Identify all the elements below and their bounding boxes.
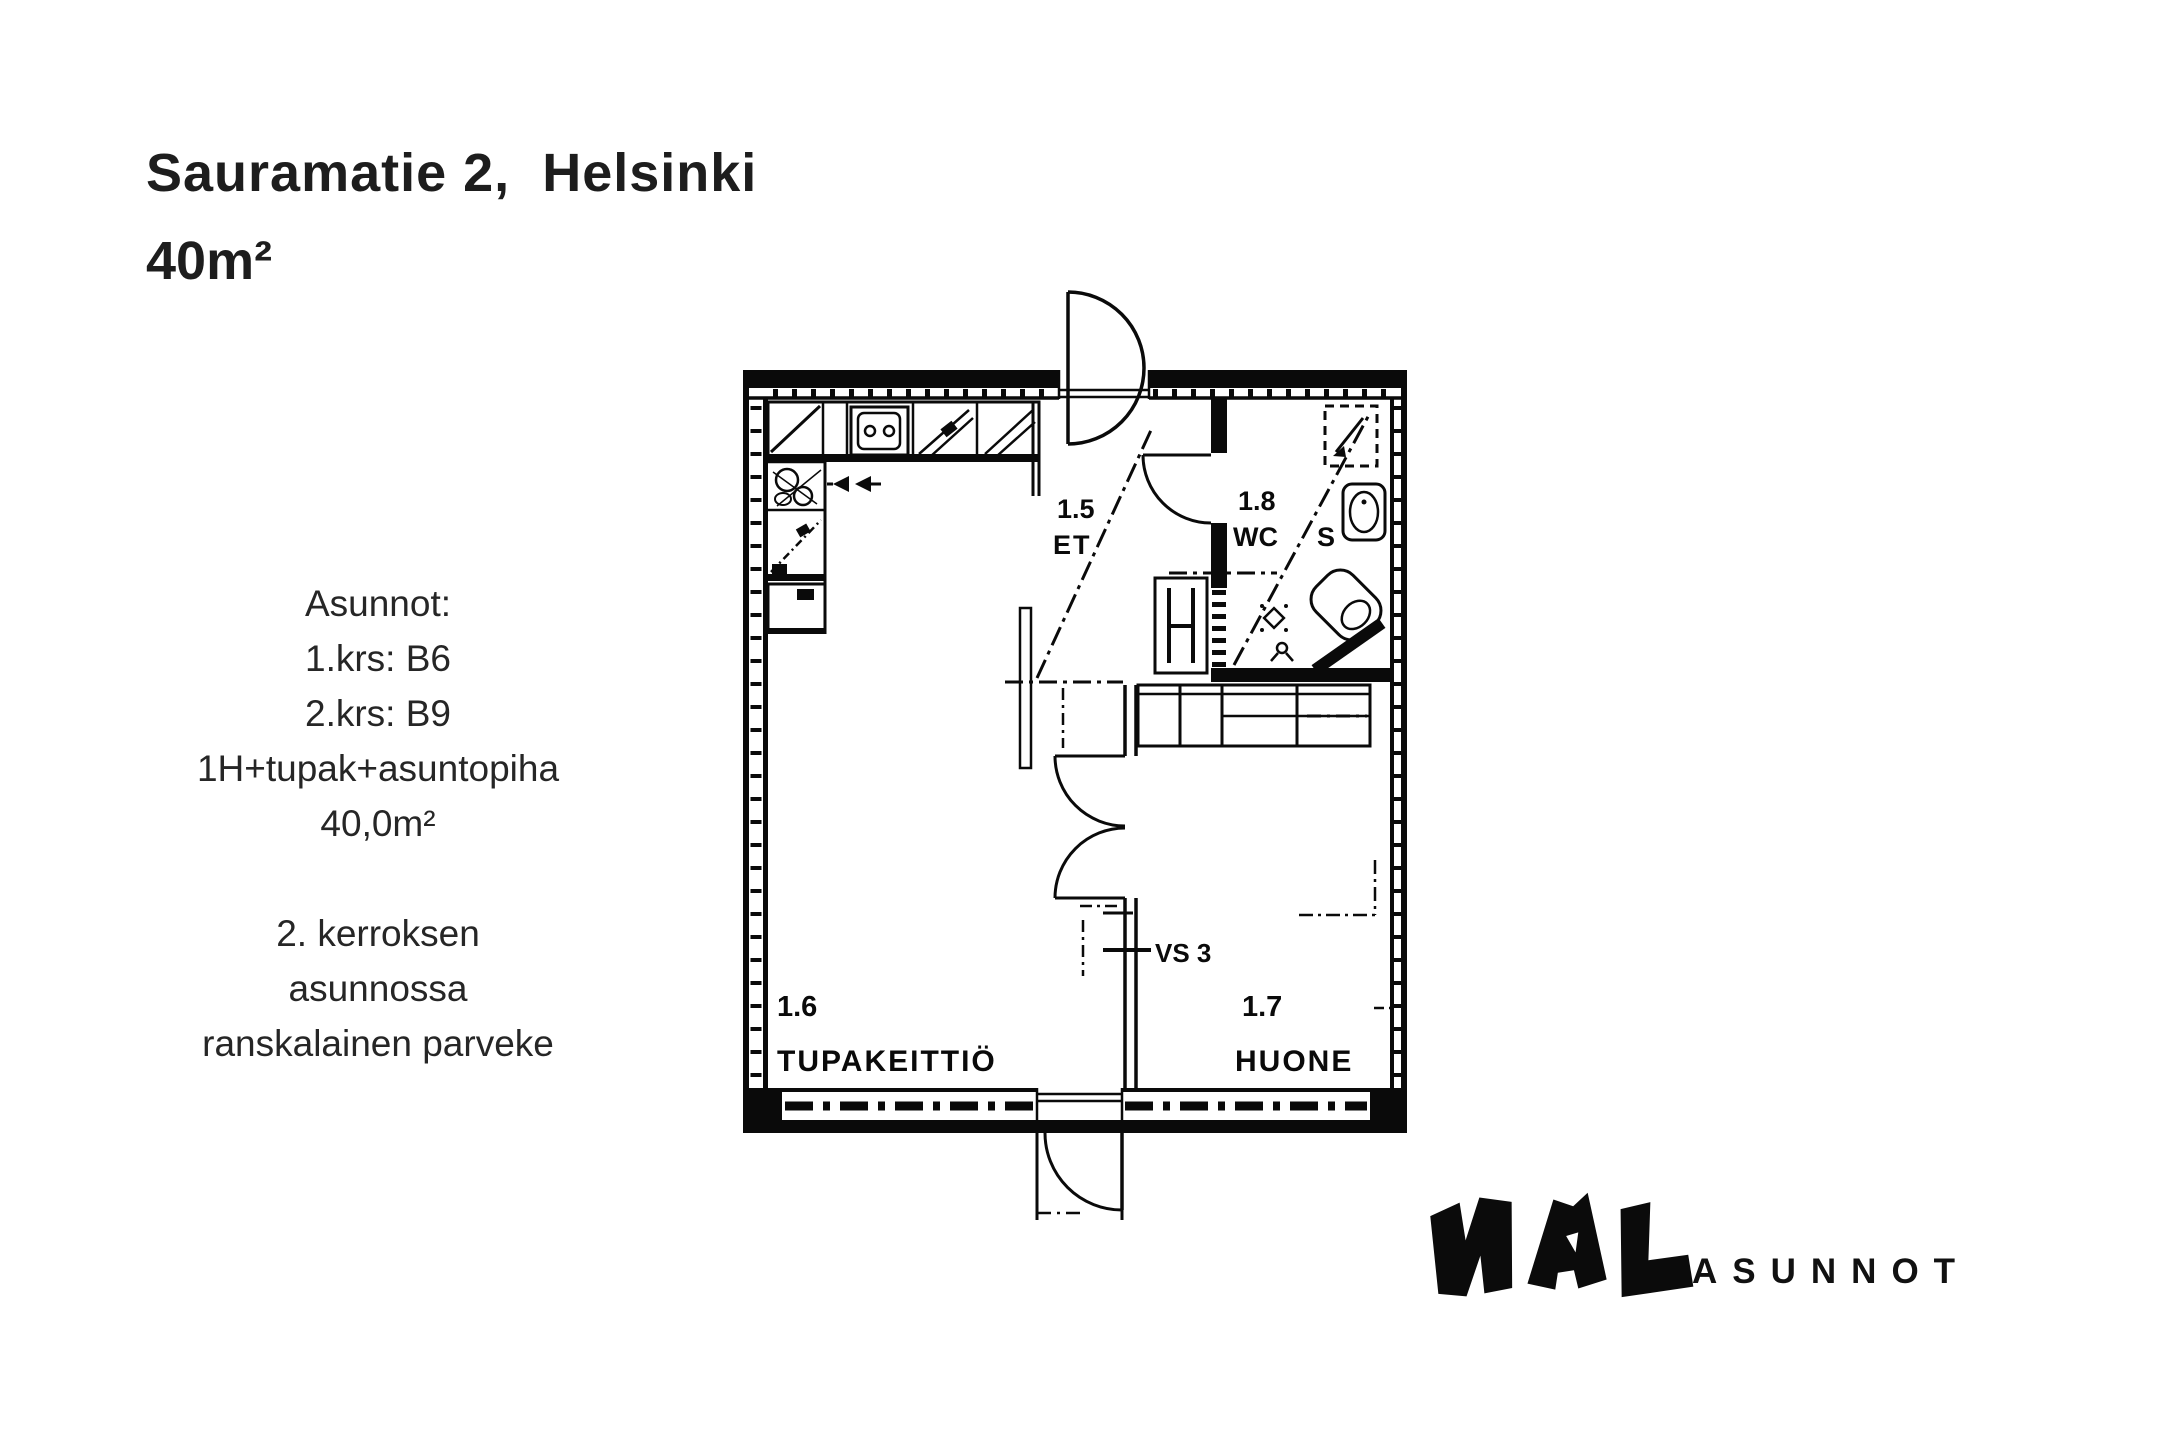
stove-icon (851, 407, 908, 455)
shower-icon (1271, 643, 1293, 661)
room-name-wc: WC (1233, 522, 1278, 552)
balcony-note: 2. kerroksen asunnossa ranskalainen parv… (108, 906, 648, 1071)
logo-letter-l (1618, 1201, 1693, 1297)
room-door (1055, 756, 1125, 898)
hall-et: 1.5 ET (1005, 428, 1152, 768)
info-line: 40,0m² (108, 796, 648, 851)
wall-label: VS 3 (1155, 938, 1211, 968)
washer-reservation-icon (1325, 406, 1377, 466)
corner-cabinet-icon (771, 406, 820, 452)
room-name-tupakeittio: TUPAKEITTIÖ (777, 1045, 997, 1078)
room-number-tupakeittio: 1.6 (777, 991, 817, 1023)
room-number-huone: 1.7 (1242, 991, 1282, 1023)
room-number-et: 1.5 (1057, 494, 1095, 524)
info-line: 1H+tupak+asuntopiha (108, 741, 648, 796)
logo-wordmark: ASUNNOT (1692, 1252, 1970, 1292)
note-line: 2. kerroksen (108, 906, 648, 961)
room-number-wc: 1.8 (1238, 486, 1276, 516)
fridge-icon (768, 584, 825, 630)
wc-sink-icon (1343, 484, 1385, 540)
shower-screen (1315, 623, 1382, 670)
cabinet-marks (985, 410, 1035, 456)
wardrobe-h-icon (1155, 578, 1207, 673)
wc-room: 1.8 WC S (1143, 398, 1390, 682)
apartment-area: 40m² (146, 230, 272, 292)
note-line: asunnossa (108, 961, 648, 1016)
page: { "page": {"background":"#ffffff","ink":… (0, 0, 2160, 1440)
vent-arrow-icon (827, 476, 881, 492)
room-suffix-wc: S (1317, 522, 1335, 552)
room-huone: 1.7 HUONE (1235, 860, 1392, 1078)
sink-icon (773, 469, 821, 506)
patio-door (1037, 1133, 1122, 1220)
room-name-et: ET (1053, 530, 1092, 560)
apartment-info: Asunnot: 1.krs: B6 2.krs: B9 1H+tupak+as… (108, 576, 648, 851)
room-name-huone: HUONE (1235, 1045, 1353, 1078)
appliance-icon (771, 520, 821, 575)
page-title: Sauramatie 2, Helsinki (146, 142, 757, 204)
kitchen-counter (768, 402, 1039, 634)
nal-logo (1430, 1186, 1700, 1304)
wc-door (1143, 455, 1211, 523)
note-line: ranskalainen parveke (108, 1016, 648, 1071)
parked-door-leaf (1020, 608, 1031, 768)
info-line: Asunnot: (108, 576, 648, 631)
floorplan-drawing: 1.5 ET (737, 258, 1427, 1258)
info-line: 2.krs: B9 (108, 686, 648, 741)
room-tupakeittio: 1.6 TUPAKEITTIÖ (777, 991, 997, 1078)
logo-letter-a (1527, 1191, 1609, 1292)
dishwasher-icon (919, 410, 973, 456)
logo-letter-n (1430, 1196, 1516, 1298)
info-line: 1.krs: B6 (108, 631, 648, 686)
